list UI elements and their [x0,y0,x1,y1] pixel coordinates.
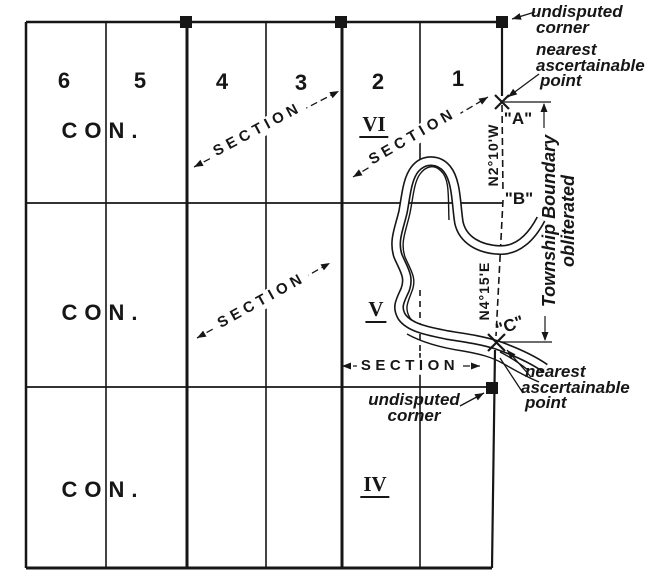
undisputed-corner-note-bottom: undisputed corner [358,392,470,423]
section-number-5: 5 [134,68,146,94]
roman-numeral-iv: IV [360,474,389,498]
monument-square-top-1 [180,16,192,28]
point-label-b: "B" [505,189,533,209]
section-number-1: 1 [452,66,464,92]
section-number-2: 2 [372,69,384,95]
section-line-label-4: SECTION [357,358,463,375]
point-label-a: "A" [504,109,532,129]
bearing-label-a-b: N2°10'W [485,124,501,187]
section-number-4: 4 [216,69,228,95]
undisputed-corner-top-line2: corner [531,20,623,36]
township-boundary-note: Township Boundary obliterated [540,135,578,307]
nearest-point-top-line3: point [536,73,645,89]
section-number-3: 3 [295,70,307,96]
undisputed-corner-bottom-line2: corner [358,408,470,424]
nearest-point-note-bottom: nearest ascertainable point [521,364,630,411]
undisputed-corner-note-top: undisputed corner [531,4,623,35]
concession-label-iv: CON. [62,477,145,503]
township-boundary-note-line2: obliterated [559,135,578,307]
roman-numeral-vi: VI [359,114,388,138]
section-number-6: 6 [58,68,70,94]
monument-square-undisputed-corner-bottom [486,382,498,394]
concession-label-vi: CON. [62,118,145,144]
roman-numeral-v: V [365,299,386,323]
nearest-point-bottom-line3: point [521,395,630,411]
survey-diagram: 6 5 4 3 2 1 CON. CON. CON. VI V IV SECTI… [0,0,658,585]
monument-square-top-2 [335,16,347,28]
nearest-point-note-top: nearest ascertainable point [536,42,645,89]
township-boundary-note-line1: Township Boundary [540,135,559,307]
concession-label-v: CON. [62,300,145,326]
bearing-label-b-c: N4°15'E [476,262,492,321]
monument-square-undisputed-corner-top [496,16,508,28]
